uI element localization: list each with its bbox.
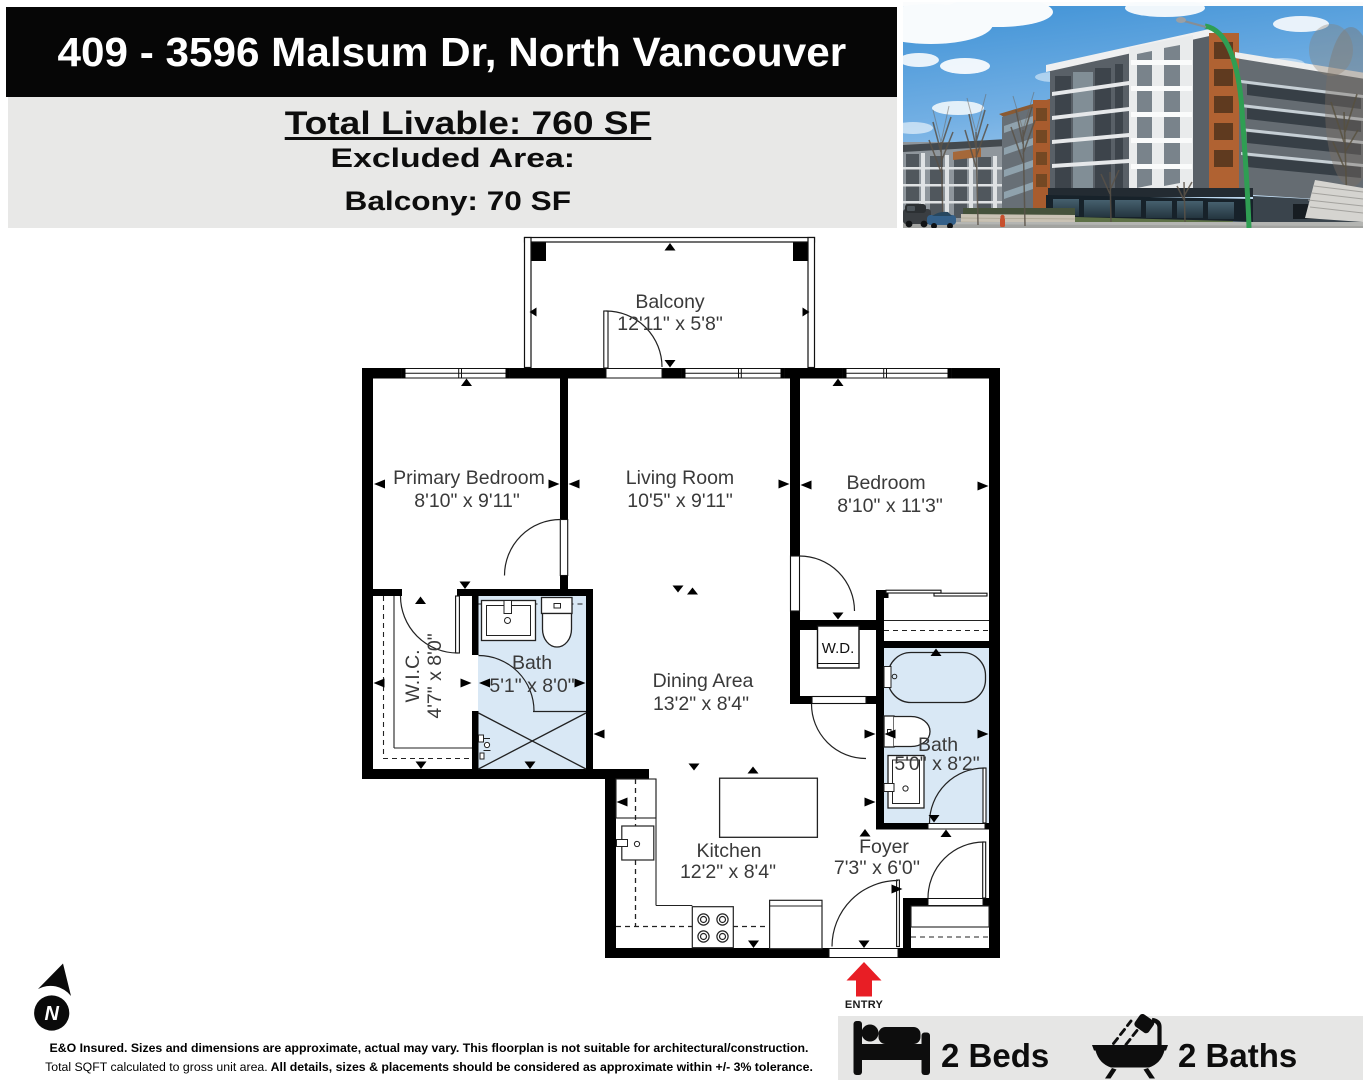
svg-text:Primary Bedroom: Primary Bedroom [393, 467, 545, 489]
svg-text:Kitchen: Kitchen [696, 840, 761, 862]
svg-text:W.I.C.: W.I.C. [402, 649, 424, 702]
svg-text:Bedroom: Bedroom [846, 472, 925, 494]
svg-text:Dining Area: Dining Area [653, 670, 754, 692]
svg-text:13'2" x 8'4": 13'2" x 8'4" [653, 693, 749, 715]
svg-text:Living Room: Living Room [626, 467, 734, 489]
svg-text:N: N [44, 1003, 59, 1025]
svg-text:Bath: Bath [512, 652, 552, 674]
svg-text:8'10" x 11'3": 8'10" x 11'3" [837, 495, 943, 517]
svg-text:5'1" x 8'0": 5'1" x 8'0" [489, 675, 574, 697]
svg-text:8'10" x 9'11": 8'10" x 9'11" [414, 490, 520, 512]
svg-text:12'2" x 8'4": 12'2" x 8'4" [680, 861, 776, 883]
svg-text:7'3'' x 6'0'': 7'3'' x 6'0'' [834, 857, 920, 879]
svg-text:10'5" x 9'11": 10'5" x 9'11" [627, 490, 733, 512]
svg-text:4'7" x 8'0": 4'7" x 8'0" [424, 633, 446, 718]
svg-text:Foyer: Foyer [859, 836, 909, 858]
svg-text:W.D.: W.D. [822, 640, 855, 657]
svg-text:12'11" x 5'8": 12'11" x 5'8" [617, 313, 723, 335]
svg-text:5'0" x 8'2": 5'0" x 8'2" [894, 753, 979, 775]
svg-text:Balcony: Balcony [635, 291, 705, 313]
